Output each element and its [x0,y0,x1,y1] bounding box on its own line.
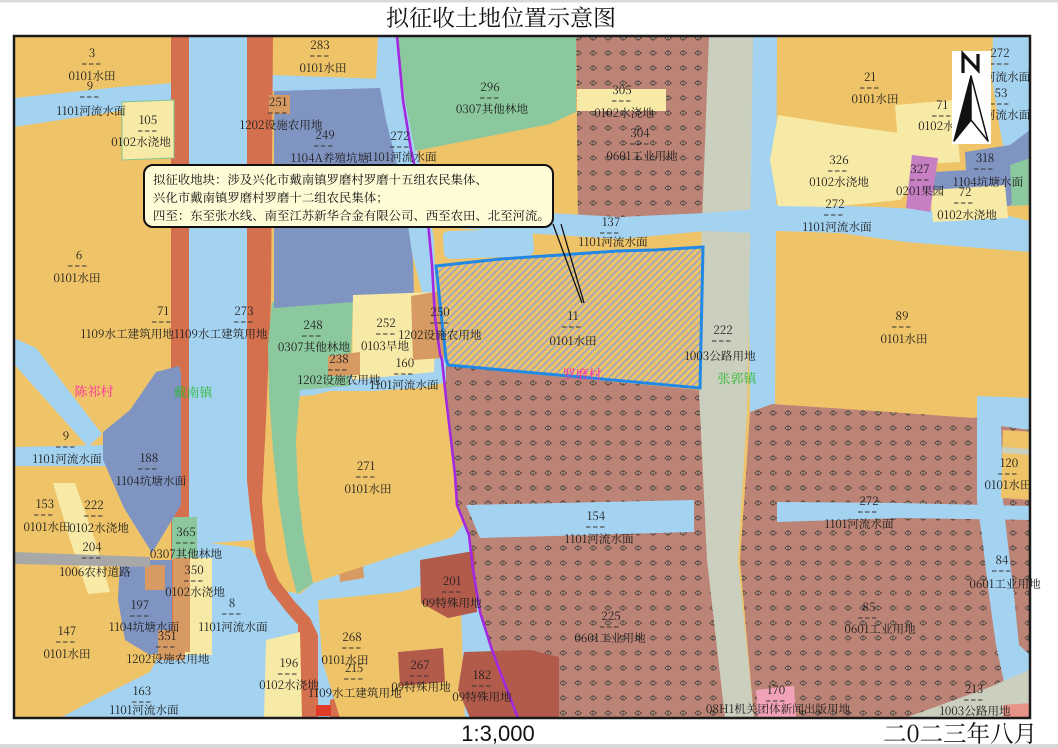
svg-text:1:3,000: 1:3,000 [461,721,534,746]
